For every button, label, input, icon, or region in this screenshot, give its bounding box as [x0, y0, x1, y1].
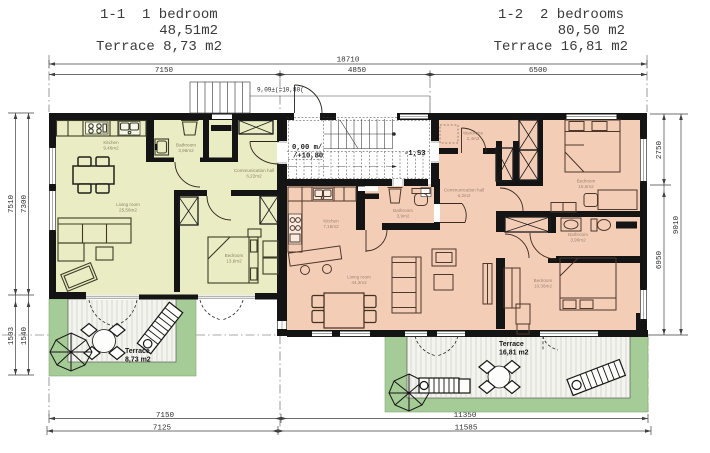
- svg-text:1503: 1503: [8, 326, 16, 345]
- svg-text:10,36m2: 10,36m2: [534, 284, 552, 289]
- svg-text:Terrace: Terrace: [499, 341, 524, 348]
- svg-text:Terrace: Terrace: [125, 348, 150, 355]
- svg-text:25,56m2: 25,56m2: [119, 208, 137, 213]
- svg-text:Wardrobe: Wardrobe: [463, 131, 483, 136]
- svg-text:Bedroom: Bedroom: [534, 278, 553, 283]
- svg-text:Bedroom: Bedroom: [225, 253, 244, 258]
- svg-text:Living room: Living room: [116, 202, 140, 207]
- svg-text:8,73 m2: 8,73 m2: [125, 357, 151, 364]
- svg-text:3,96m2: 3,96m2: [570, 238, 586, 243]
- svg-text:Kitchen: Kitchen: [323, 219, 339, 224]
- svg-text:1540: 1540: [21, 326, 29, 345]
- svg-text:4850: 4850: [348, 67, 367, 75]
- svg-text:Communication hall: Communication hall: [234, 168, 274, 173]
- svg-text:11350: 11350: [454, 412, 477, 420]
- svg-text:-1,53: -1,53: [404, 150, 426, 158]
- svg-text:0,00 m/: 0,00 m/: [292, 144, 322, 152]
- svg-text:6500: 6500: [529, 67, 548, 75]
- svg-text:Living room: Living room: [347, 275, 371, 280]
- svg-text:6950: 6950: [656, 250, 664, 269]
- svg-text:7150: 7150: [155, 67, 174, 75]
- svg-text:Bedroom: Bedroom: [577, 179, 596, 184]
- svg-text:3,9m2: 3,9m2: [397, 214, 410, 219]
- svg-text:7,16m2: 7,16m2: [323, 224, 339, 229]
- svg-text:80,50 m2: 80,50 m2: [558, 23, 625, 39]
- svg-text:7150: 7150: [156, 412, 175, 420]
- svg-text:11585: 11585: [455, 425, 478, 433]
- svg-text:3,96m2: 3,96m2: [178, 148, 194, 153]
- svg-text:Bathroom: Bathroom: [176, 143, 196, 148]
- svg-text:9,09±(=10,80(: 9,09±(=10,80(: [257, 87, 304, 94]
- svg-text:7510: 7510: [8, 194, 16, 213]
- svg-text:1-2 2 bedrooms: 1-2 2 bedrooms: [498, 7, 624, 23]
- svg-text:7125: 7125: [153, 425, 172, 433]
- svg-text:9010: 9010: [673, 215, 681, 234]
- svg-text:Bathroom: Bathroom: [568, 232, 588, 237]
- svg-text:7300: 7300: [21, 194, 29, 213]
- svg-text:Bathroom: Bathroom: [393, 208, 413, 213]
- svg-text:44,3m2: 44,3m2: [351, 280, 367, 285]
- svg-text:9,46m2: 9,46m2: [103, 146, 119, 151]
- svg-text:Communication hall: Communication hall: [444, 188, 484, 193]
- svg-text:1-1 1 bedroom: 1-1 1 bedroom: [100, 7, 218, 23]
- svg-text:6,22m2: 6,22m2: [246, 174, 262, 179]
- svg-text:48,51m2: 48,51m2: [159, 23, 218, 39]
- svg-text:6,2m2: 6,2m2: [458, 193, 471, 198]
- svg-text:16,81 m2: 16,81 m2: [499, 350, 529, 357]
- svg-text:2,4m2: 2,4m2: [467, 136, 480, 141]
- svg-text:18710: 18710: [337, 57, 360, 65]
- svg-text:Kitchen: Kitchen: [103, 140, 119, 145]
- svg-text:Terrace 16,81 m2: Terrace 16,81 m2: [494, 39, 628, 55]
- svg-text:2750: 2750: [656, 140, 664, 159]
- svg-text:Terrace 8,73 m2: Terrace 8,73 m2: [96, 39, 222, 55]
- svg-text:13,6m2: 13,6m2: [226, 259, 242, 264]
- svg-text:16,5m2: 16,5m2: [578, 184, 594, 189]
